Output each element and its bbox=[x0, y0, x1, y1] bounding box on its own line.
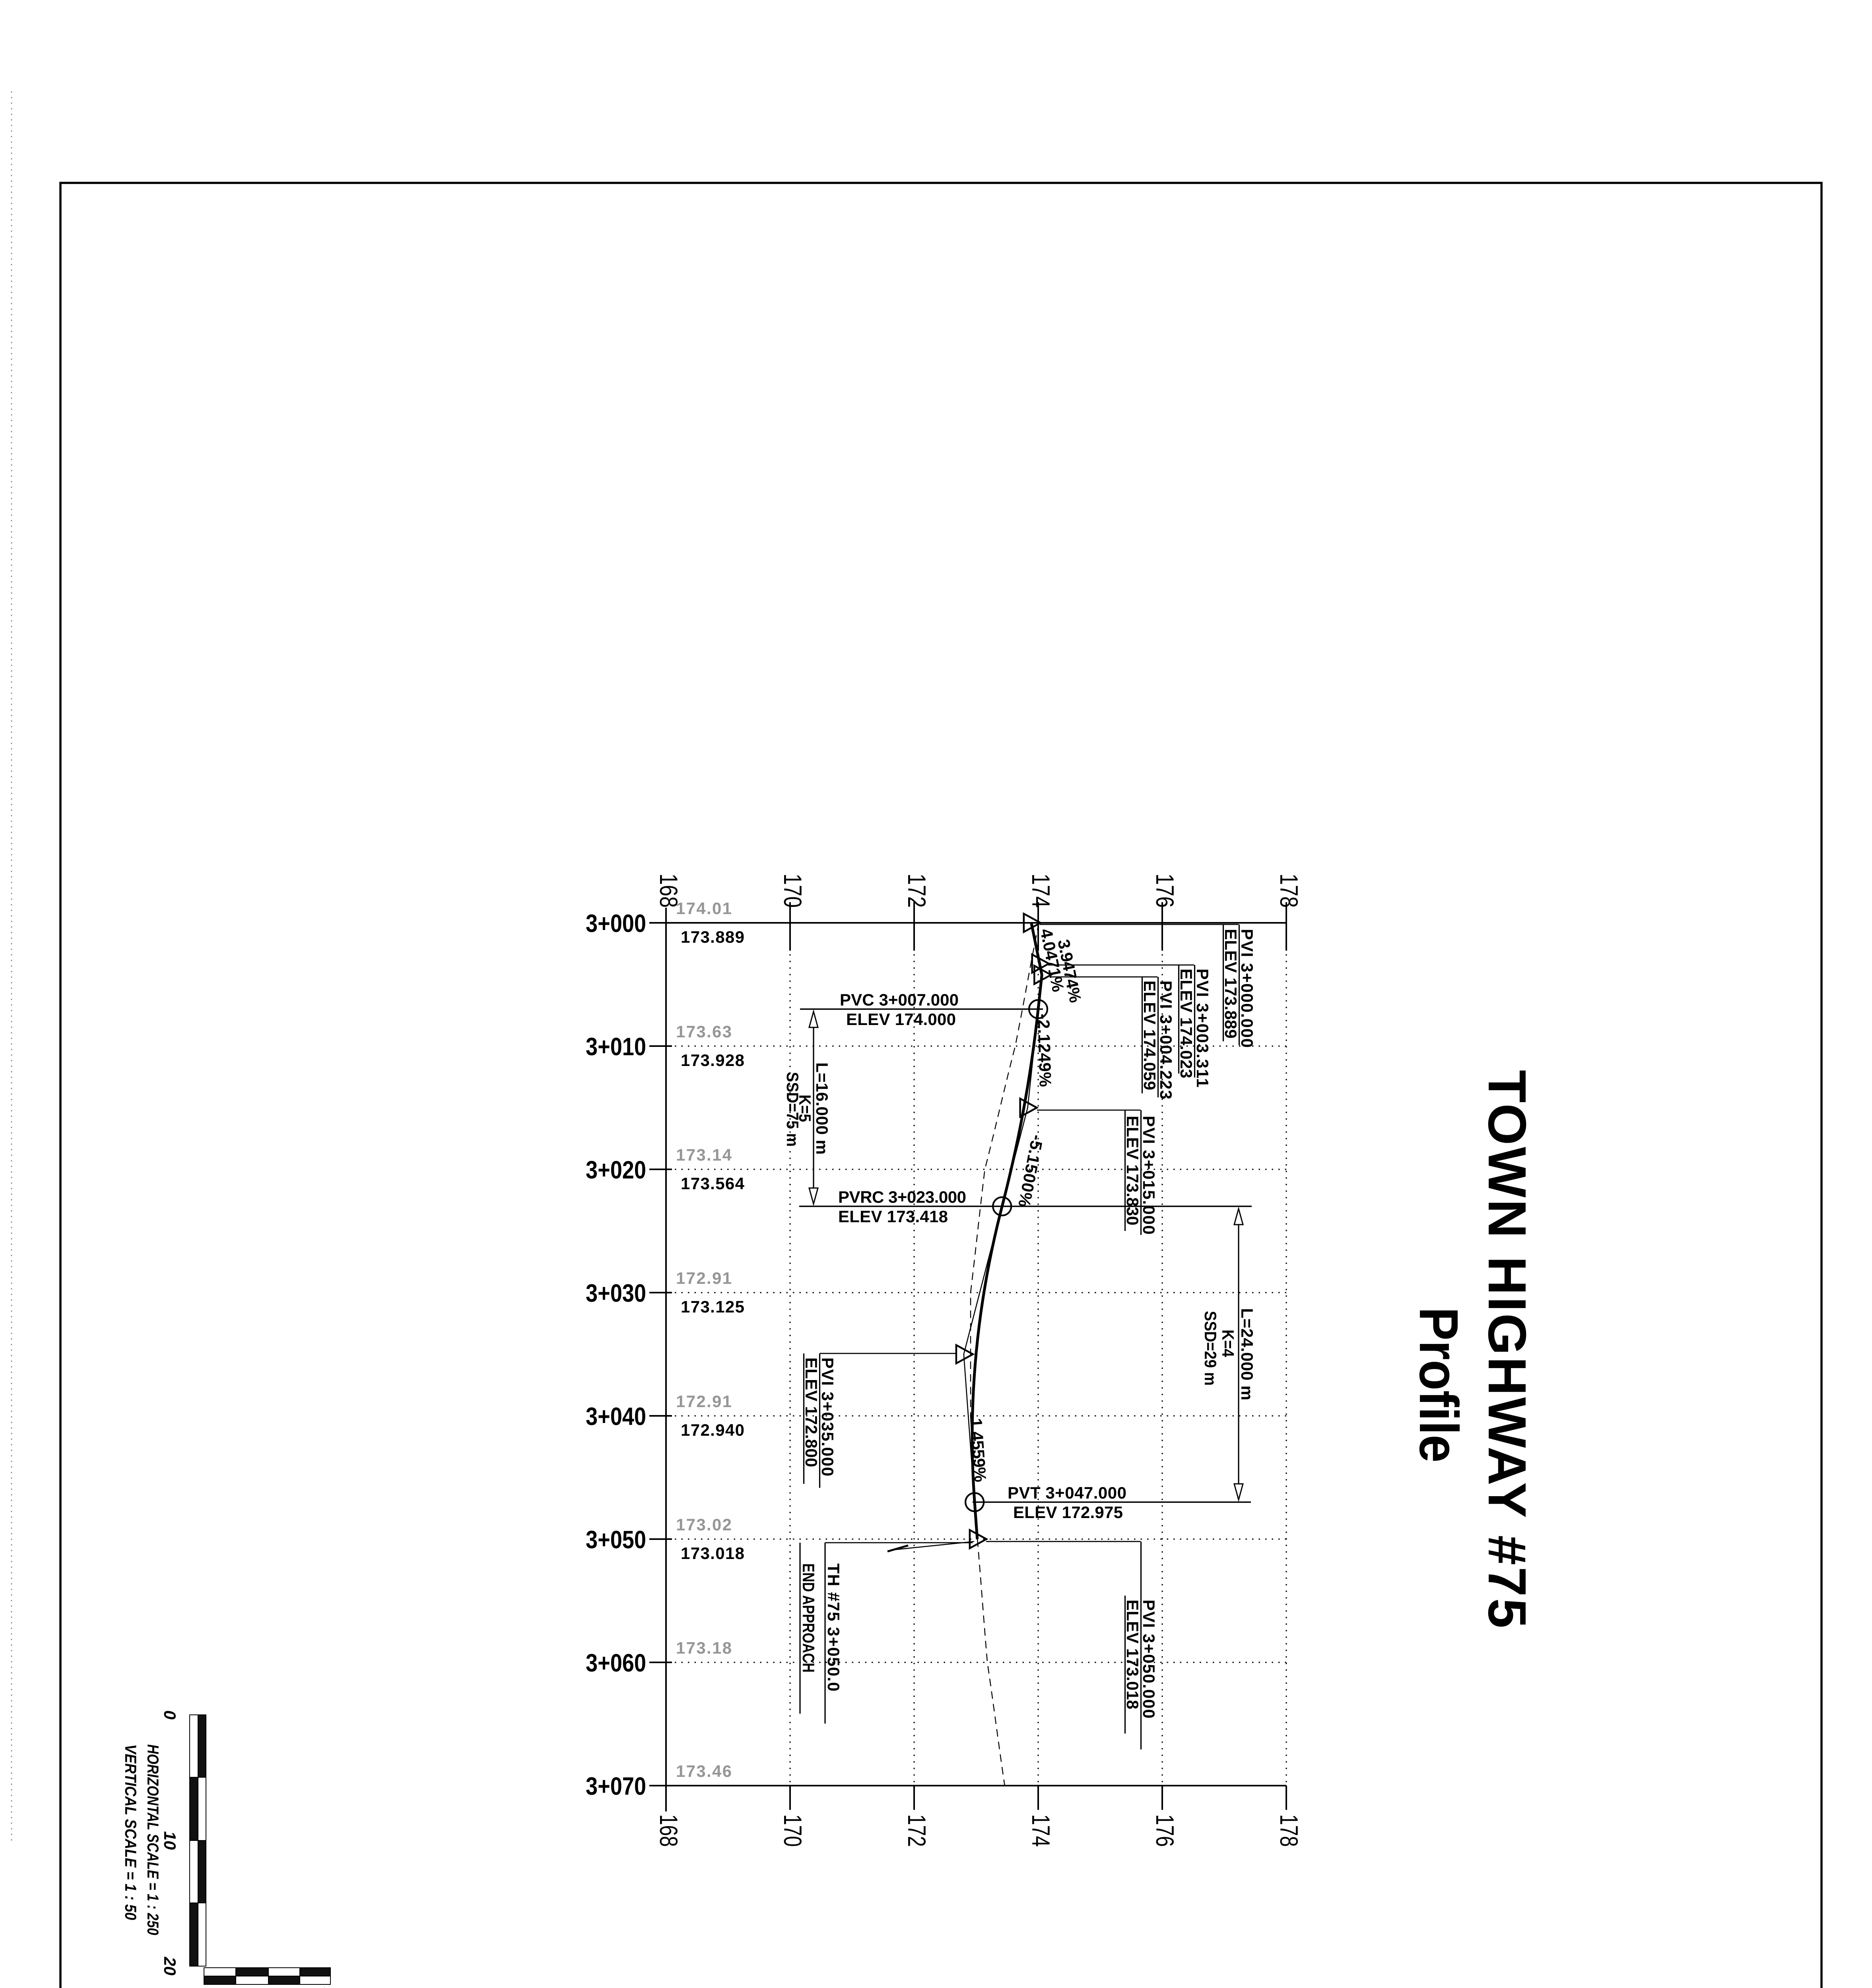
svg-text:3+070: 3+070 bbox=[586, 1773, 646, 1800]
svg-text:170: 170 bbox=[779, 874, 806, 908]
svg-text:VERTICAL SCALE = 1 : 50: VERTICAL SCALE = 1 : 50 bbox=[122, 1744, 139, 1920]
svg-text:10: 10 bbox=[161, 1831, 179, 1850]
svg-text:ELEV 172.975: ELEV 172.975 bbox=[1013, 1503, 1123, 1522]
svg-text:173.18: 173.18 bbox=[676, 1639, 732, 1657]
svg-text:172.91: 172.91 bbox=[676, 1392, 732, 1411]
svg-text:PVI 3+003.311: PVI 3+003.311 bbox=[1193, 969, 1212, 1087]
svg-text:K=4: K=4 bbox=[1218, 1330, 1237, 1357]
svg-text:SSD=75 m: SSD=75 m bbox=[783, 1072, 802, 1147]
svg-text:3+050: 3+050 bbox=[586, 1526, 646, 1554]
svg-text:PVC 3+007.000: PVC 3+007.000 bbox=[840, 990, 959, 1009]
svg-text:Profile: Profile bbox=[1408, 1307, 1470, 1463]
svg-text:176: 176 bbox=[1151, 1814, 1179, 1847]
svg-text:L=24.000 m: L=24.000 m bbox=[1238, 1308, 1256, 1400]
svg-text:173.125: 173.125 bbox=[681, 1297, 744, 1316]
svg-text:174.01: 174.01 bbox=[676, 899, 732, 918]
svg-text:172: 172 bbox=[903, 874, 930, 908]
svg-text:L=16.000 m: L=16.000 m bbox=[813, 1062, 831, 1155]
svg-text:SSD=29 m: SSD=29 m bbox=[1201, 1311, 1220, 1386]
svg-text:3+000: 3+000 bbox=[586, 910, 646, 938]
svg-text:ELEV 174.023: ELEV 174.023 bbox=[1177, 969, 1196, 1078]
svg-text:PVI 3+015.000: PVI 3+015.000 bbox=[1140, 1116, 1158, 1235]
svg-text:PVI 3+000.000: PVI 3+000.000 bbox=[1238, 929, 1256, 1048]
svg-text:PVI 3+035.000: PVI 3+035.000 bbox=[818, 1357, 837, 1476]
svg-text:1.4559%: 1.4559% bbox=[967, 1417, 990, 1483]
svg-text:173.46: 173.46 bbox=[676, 1762, 732, 1780]
svg-text:170: 170 bbox=[779, 1814, 807, 1847]
svg-text:173.928: 173.928 bbox=[681, 1051, 744, 1070]
svg-text:172: 172 bbox=[903, 1814, 931, 1847]
svg-text:PVRC 3+023.000: PVRC 3+023.000 bbox=[838, 1188, 966, 1206]
svg-text:PVI 3+004.223: PVI 3+004.223 bbox=[1157, 980, 1175, 1099]
svg-text:176: 176 bbox=[1151, 874, 1179, 908]
svg-text:ELEV 174.000: ELEV 174.000 bbox=[846, 1010, 956, 1029]
svg-text:174: 174 bbox=[1027, 1814, 1055, 1847]
svg-text:ELEV 173.830: ELEV 173.830 bbox=[1123, 1116, 1142, 1225]
svg-text:173.63: 173.63 bbox=[676, 1022, 732, 1041]
svg-text:ELEV 173.018: ELEV 173.018 bbox=[1123, 1600, 1142, 1709]
svg-text:0: 0 bbox=[161, 1710, 179, 1719]
svg-text:173.02: 173.02 bbox=[676, 1515, 732, 1534]
svg-text:168: 168 bbox=[655, 1814, 683, 1847]
svg-text:174: 174 bbox=[1027, 874, 1054, 908]
svg-text:178: 178 bbox=[1275, 874, 1303, 908]
svg-text:173.14: 173.14 bbox=[676, 1145, 732, 1164]
svg-text:-2.1249%: -2.1249% bbox=[1034, 1013, 1055, 1087]
svg-text:ELEV 174.059: ELEV 174.059 bbox=[1140, 980, 1159, 1090]
svg-text:172.91: 172.91 bbox=[676, 1269, 732, 1287]
svg-text:172.940: 172.940 bbox=[681, 1421, 744, 1439]
svg-text:20: 20 bbox=[161, 1957, 179, 1976]
svg-text:3+060: 3+060 bbox=[586, 1649, 646, 1677]
svg-text:173.018: 173.018 bbox=[681, 1544, 744, 1563]
svg-text:3+020: 3+020 bbox=[586, 1156, 646, 1184]
svg-text:3+010: 3+010 bbox=[586, 1033, 646, 1061]
svg-text:PVT 3+047.000: PVT 3+047.000 bbox=[1008, 1483, 1126, 1502]
svg-text:TH #75 3+050.0: TH #75 3+050.0 bbox=[824, 1563, 843, 1691]
svg-text:ELEV 173.889: ELEV 173.889 bbox=[1221, 929, 1240, 1039]
svg-text:173.889: 173.889 bbox=[681, 928, 744, 946]
svg-text:-5.1500%: -5.1500% bbox=[1015, 1133, 1047, 1209]
svg-text:ELEV 172.800: ELEV 172.800 bbox=[802, 1357, 821, 1467]
svg-text:173.564: 173.564 bbox=[681, 1174, 745, 1193]
svg-text:END APPROACH: END APPROACH bbox=[799, 1563, 818, 1673]
svg-text:ELEV 173.418: ELEV 173.418 bbox=[838, 1207, 948, 1226]
svg-text:178: 178 bbox=[1275, 1814, 1303, 1847]
svg-text:TOWN HIGHWAY #75: TOWN HIGHWAY #75 bbox=[1477, 1070, 1537, 1628]
svg-text:HORIZONTAL SCALE = 1 : 250: HORIZONTAL SCALE = 1 : 250 bbox=[144, 1744, 162, 1936]
svg-text:3+040: 3+040 bbox=[586, 1403, 646, 1431]
svg-text:PVI 3+050.000: PVI 3+050.000 bbox=[1140, 1600, 1158, 1718]
svg-text:3+030: 3+030 bbox=[586, 1279, 646, 1307]
